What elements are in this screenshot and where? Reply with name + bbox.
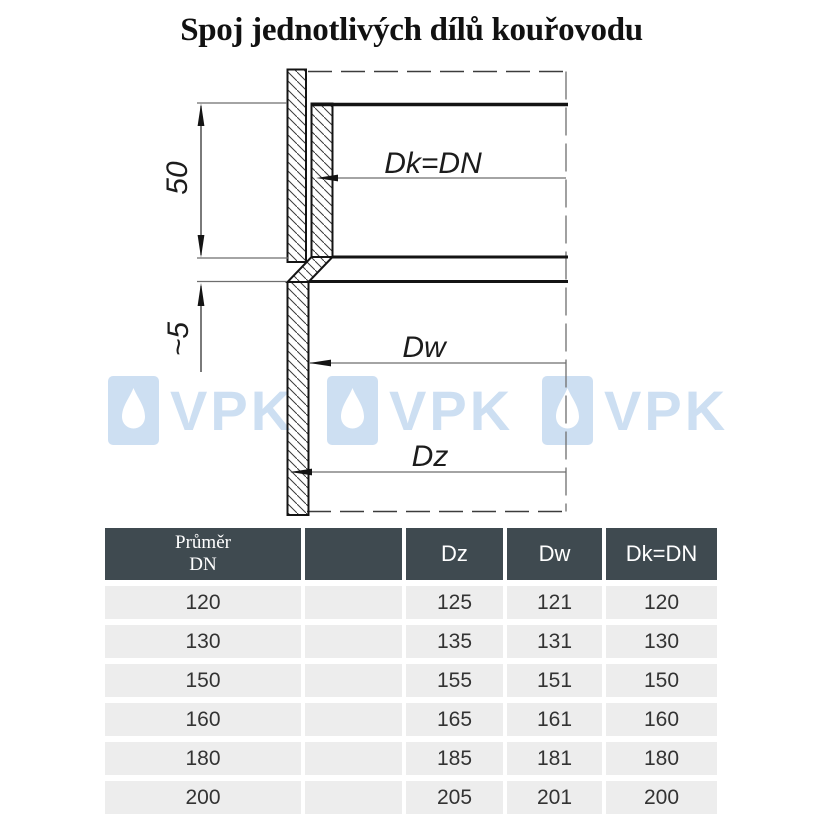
dimension-dz: Dz — [290, 440, 566, 475]
dz-label: Dz — [412, 440, 449, 473]
dimension-dk: Dk=DN — [316, 147, 566, 181]
cell-dw: 161 — [507, 703, 602, 736]
cell-dw: 121 — [507, 586, 602, 619]
dim-gap-label: ~5 — [162, 322, 195, 357]
cell-dk: 150 — [606, 664, 717, 697]
cell-dn: 180 — [105, 742, 301, 775]
dimension-dw: Dw — [309, 331, 566, 366]
dimension-50: 50 — [161, 104, 204, 258]
col-header-spacer — [305, 528, 402, 580]
dim-50-label: 50 — [161, 161, 194, 195]
cell-dn: 160 — [105, 703, 301, 736]
col-header-diameter-line1: Průměr — [175, 532, 231, 554]
cell-spacer — [305, 625, 402, 658]
dimension-table: Průměr DN Dz Dw Dk=DN 120125121120130135… — [105, 528, 717, 814]
cell-dw: 131 — [507, 625, 602, 658]
cell-dz: 165 — [406, 703, 503, 736]
cell-dk: 200 — [606, 781, 717, 814]
cell-dz: 125 — [406, 586, 503, 619]
cell-spacer — [305, 703, 402, 736]
dw-label: Dw — [402, 331, 448, 364]
extension-lines — [197, 103, 288, 282]
cell-dw: 201 — [507, 781, 602, 814]
cell-dz: 205 — [406, 781, 503, 814]
cell-dn: 130 — [105, 625, 301, 658]
dk-label: Dk=DN — [384, 147, 482, 180]
col-header-diameter-line2: DN — [189, 554, 216, 576]
dimension-gap-5: ~5 — [162, 283, 204, 372]
cell-dk: 180 — [606, 742, 717, 775]
page: Spoj jednotlivých dílů kouřovodu VPK VPK… — [0, 0, 823, 823]
col-header-dw: Dw — [507, 528, 602, 580]
cell-dn: 200 — [105, 781, 301, 814]
col-header-diameter: Průměr DN — [105, 528, 301, 580]
cell-spacer — [305, 586, 402, 619]
cell-spacer — [305, 742, 402, 775]
cell-dk: 130 — [606, 625, 717, 658]
cell-spacer — [305, 781, 402, 814]
cell-dw: 151 — [507, 664, 602, 697]
cell-spacer — [305, 664, 402, 697]
cell-dz: 155 — [406, 664, 503, 697]
cell-dk: 120 — [606, 586, 717, 619]
cell-dn: 150 — [105, 664, 301, 697]
col-header-dz: Dz — [406, 528, 503, 580]
cell-dk: 160 — [606, 703, 717, 736]
cell-dz: 135 — [406, 625, 503, 658]
cell-dn: 120 — [105, 586, 301, 619]
cell-dz: 185 — [406, 742, 503, 775]
col-header-dk: Dk=DN — [606, 528, 717, 580]
cell-dw: 181 — [507, 742, 602, 775]
